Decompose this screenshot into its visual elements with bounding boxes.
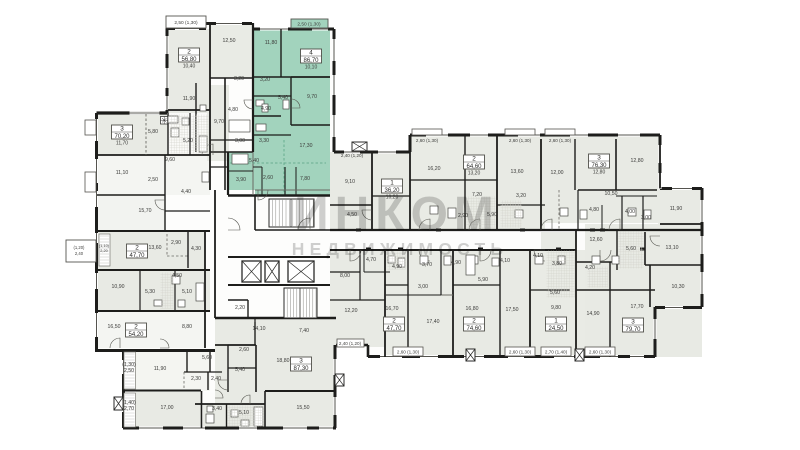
svg-text:12,00: 12,00 [551,170,564,176]
svg-text:9,60: 9,60 [165,157,175,163]
svg-text:12,80: 12,80 [631,158,644,164]
svg-text:54,20: 54,20 [128,332,144,338]
svg-text:2,70: 2,70 [124,406,134,412]
svg-text:2,50 (1,30): 2,50 (1,30) [297,22,321,28]
svg-text:18,80: 18,80 [277,358,290,364]
svg-text:2,60 (1,30): 2,60 (1,30) [509,350,532,355]
svg-text:7,40: 7,40 [299,328,309,334]
svg-text:86,70: 86,70 [303,58,319,64]
svg-text:7,80: 7,80 [300,176,310,182]
svg-text:2,20: 2,20 [235,305,245,311]
svg-text:3,80: 3,80 [552,261,562,267]
svg-text:4,50: 4,50 [172,273,182,279]
svg-text:12,80: 12,80 [593,170,606,176]
svg-text:4: 4 [309,49,313,56]
svg-text:13,60: 13,60 [149,245,162,251]
svg-text:2: 2 [135,244,139,251]
svg-text:10,50: 10,50 [605,191,618,197]
svg-text:5,80: 5,80 [148,129,158,135]
svg-text:4,80: 4,80 [228,107,238,113]
svg-text:2,40: 2,40 [211,376,221,382]
svg-text:14,90: 14,90 [587,311,600,317]
svg-text:2,60 (1,30): 2,60 (1,30) [509,138,532,143]
svg-text:4,90: 4,90 [451,260,461,266]
svg-text:47,70: 47,70 [386,326,402,332]
svg-text:3: 3 [120,125,124,132]
svg-text:3,30: 3,30 [259,138,269,144]
svg-text:10,30: 10,30 [672,284,685,290]
svg-text:9,70: 9,70 [307,94,317,100]
svg-text:2,60 (1,30): 2,60 (1,30) [397,350,420,355]
svg-text:2,70 (1,40): 2,70 (1,40) [545,350,568,355]
svg-text:16,80: 16,80 [466,306,479,312]
svg-text:10,90: 10,90 [112,284,125,290]
svg-text:3,20: 3,20 [260,77,270,83]
svg-text:5,40: 5,40 [235,367,245,373]
svg-text:2: 2 [472,317,476,324]
svg-text:17,40: 17,40 [427,319,440,325]
svg-text:2,30: 2,30 [191,376,201,382]
svg-text:13,60: 13,60 [511,169,524,175]
svg-text:5,60: 5,60 [202,355,212,361]
svg-text:(1,10): (1,10) [99,244,110,248]
svg-text:1: 1 [554,317,558,324]
svg-text:5,90: 5,90 [478,277,488,283]
svg-text:2,20: 2,20 [100,249,107,253]
svg-text:3: 3 [299,357,303,364]
svg-text:8,00: 8,00 [340,273,350,279]
svg-text:8,80: 8,80 [182,324,192,330]
svg-text:2,40 (1,20): 2,40 (1,20) [339,341,362,346]
svg-text:9,70: 9,70 [214,119,224,125]
svg-text:4,20: 4,20 [585,265,595,271]
svg-text:2,60 (1,30): 2,60 (1,30) [549,138,572,143]
svg-text:3,00: 3,00 [641,215,651,221]
svg-text:79,70: 79,70 [625,327,641,333]
svg-text:4,90: 4,90 [261,106,271,112]
svg-text:15,70: 15,70 [139,208,152,214]
svg-text:5,40: 5,40 [278,95,288,101]
svg-text:5,10: 5,10 [182,289,192,295]
svg-text:47,70: 47,70 [129,253,145,259]
svg-text:5,30: 5,30 [145,289,155,295]
svg-text:2,90: 2,90 [171,240,181,246]
svg-text:4,10: 4,10 [533,253,543,259]
svg-text:64,60: 64,60 [466,164,482,170]
svg-text:ИНКОМ: ИНКОМ [294,188,500,241]
svg-text:2,50 (1,30): 2,50 (1,30) [174,20,198,26]
svg-text:3: 3 [597,154,601,161]
svg-text:74,60: 74,60 [466,326,482,332]
svg-text:76,30: 76,30 [591,163,607,169]
svg-text:5,40: 5,40 [249,158,259,164]
svg-text:11,80: 11,80 [265,40,278,46]
svg-text:15,50: 15,50 [297,405,310,411]
svg-text:12,50: 12,50 [223,38,236,44]
svg-text:13,20: 13,20 [468,171,481,177]
svg-text:2: 2 [187,48,191,55]
svg-text:(1,20): (1,20) [74,245,86,250]
svg-text:2,40: 2,40 [75,251,84,256]
svg-text:3,00: 3,00 [235,138,245,144]
svg-text:2,60 (1,30): 2,60 (1,30) [589,350,612,355]
svg-text:70,20: 70,20 [114,134,130,140]
svg-text:12,60: 12,60 [590,237,603,243]
svg-text:11,10: 11,10 [116,170,129,176]
svg-text:4,40: 4,40 [181,189,191,195]
svg-text:5,10: 5,10 [239,410,249,416]
svg-text:1: 1 [390,179,394,186]
svg-text:12,20: 12,20 [345,308,358,314]
svg-text:3,20: 3,20 [234,76,244,82]
svg-text:5,60: 5,60 [626,246,636,252]
svg-text:2: 2 [134,323,138,330]
svg-text:9,10: 9,10 [345,179,355,185]
svg-text:2: 2 [472,155,476,162]
svg-text:87,30: 87,30 [293,366,309,372]
svg-text:4,30: 4,30 [191,246,201,252]
svg-text:56,80: 56,80 [181,57,197,63]
svg-text:11,90: 11,90 [154,366,167,372]
svg-text:24,50: 24,50 [548,326,564,332]
svg-text:11,70: 11,70 [116,141,128,147]
svg-text:13,10: 13,10 [666,245,679,251]
svg-text:2,60: 2,60 [263,175,273,181]
svg-text:17,30: 17,30 [300,143,313,149]
svg-text:16,50: 16,50 [108,324,121,330]
svg-text:14,10: 14,10 [253,326,266,332]
svg-text:16,20: 16,20 [428,166,441,172]
svg-text:9,80: 9,80 [551,305,561,311]
svg-text:2,40 (1,20): 2,40 (1,20) [341,153,364,158]
svg-text:2,60 (1,30): 2,60 (1,30) [416,138,439,143]
svg-text:10,10: 10,10 [305,65,318,71]
svg-text:2,60: 2,60 [239,347,249,353]
svg-text:17,00: 17,00 [161,405,174,411]
svg-text:3,00: 3,00 [418,284,428,290]
svg-text:11,90: 11,90 [183,96,196,102]
svg-text:3,40: 3,40 [212,406,222,412]
svg-text:4,90: 4,90 [392,264,402,270]
svg-text:17,50: 17,50 [506,307,519,313]
svg-text:3,70: 3,70 [422,262,432,268]
svg-text:2: 2 [392,317,396,324]
svg-text:11,90: 11,90 [670,206,683,212]
svg-text:2,50: 2,50 [148,177,158,183]
svg-text:2,50: 2,50 [124,368,134,374]
svg-text:16,70: 16,70 [386,306,399,312]
svg-text:5,60: 5,60 [550,290,560,296]
svg-text:17,70: 17,70 [631,304,644,310]
svg-text:5,20: 5,20 [183,138,193,144]
svg-text:4,00: 4,00 [625,209,635,215]
svg-text:3: 3 [631,318,635,325]
svg-text:НЕДВИЖИМОСТЬ: НЕДВИЖИМОСТЬ [292,239,508,259]
svg-text:4,80: 4,80 [589,207,599,213]
svg-text:3,90: 3,90 [236,177,246,183]
svg-text:3,20: 3,20 [516,193,526,199]
svg-text:10,40: 10,40 [183,64,196,70]
